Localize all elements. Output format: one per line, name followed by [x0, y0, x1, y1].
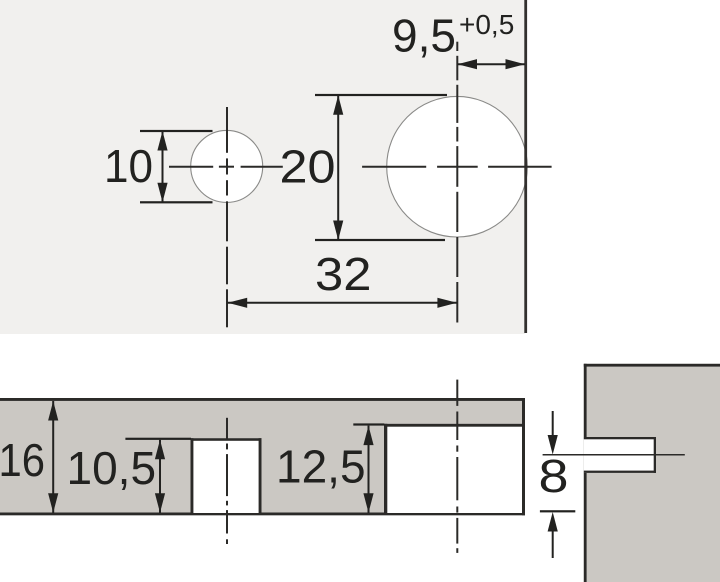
svg-text:10,5: 10,5 [67, 442, 157, 494]
svg-text:9,5: 9,5 [392, 10, 456, 62]
svg-text:8: 8 [539, 450, 569, 502]
svg-text:10: 10 [104, 140, 153, 192]
svg-text:+0,5: +0,5 [459, 9, 514, 40]
svg-text:32: 32 [315, 248, 372, 300]
svg-text:12,5: 12,5 [276, 441, 366, 493]
svg-text:16: 16 [0, 434, 45, 486]
svg-text:20: 20 [280, 141, 336, 193]
